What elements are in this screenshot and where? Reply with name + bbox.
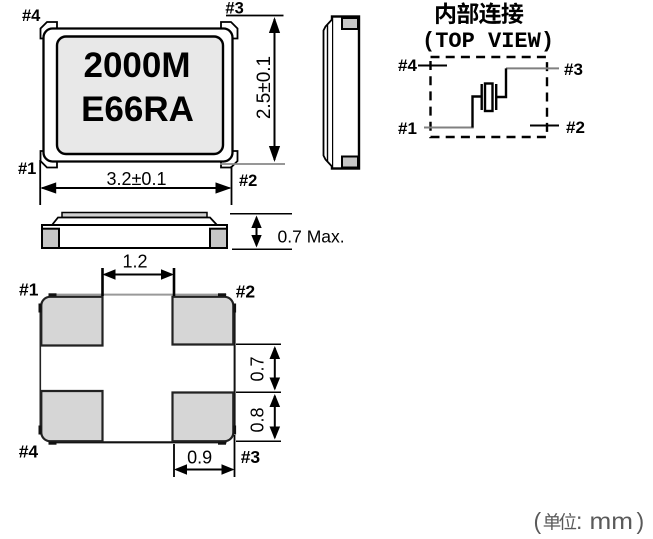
svg-text:#3: #3 (241, 447, 261, 467)
svg-text:#2: #2 (236, 282, 256, 302)
svg-text:E66RA: E66RA (81, 90, 194, 129)
svg-text:#3: #3 (564, 60, 583, 79)
svg-text:2.5±0.1: 2.5±0.1 (254, 56, 275, 119)
svg-text:0.9: 0.9 (187, 447, 212, 467)
svg-text:#1: #1 (398, 119, 417, 138)
svg-text:3.2±0.1: 3.2±0.1 (107, 169, 167, 189)
svg-text:): ) (637, 508, 645, 534)
svg-text:#1: #1 (19, 280, 39, 300)
svg-text:mm: mm (590, 508, 634, 534)
svg-text:#1: #1 (18, 160, 36, 178)
svg-text:2000M: 2000M (83, 46, 190, 85)
svg-text:#2: #2 (566, 118, 585, 137)
svg-text:#4: #4 (22, 7, 41, 25)
svg-text:#4: #4 (398, 56, 417, 75)
svg-text:(TOP VIEW): (TOP VIEW) (422, 29, 554, 54)
svg-text:0.8: 0.8 (248, 407, 268, 432)
svg-text:#2: #2 (239, 172, 257, 190)
svg-text:0.7: 0.7 (248, 356, 268, 381)
svg-text:(: ( (534, 508, 542, 534)
svg-text::: : (576, 508, 582, 534)
svg-text:#4: #4 (19, 442, 39, 462)
svg-text:0.7 Max.: 0.7 Max. (278, 227, 345, 247)
svg-text:1.2: 1.2 (122, 252, 147, 272)
